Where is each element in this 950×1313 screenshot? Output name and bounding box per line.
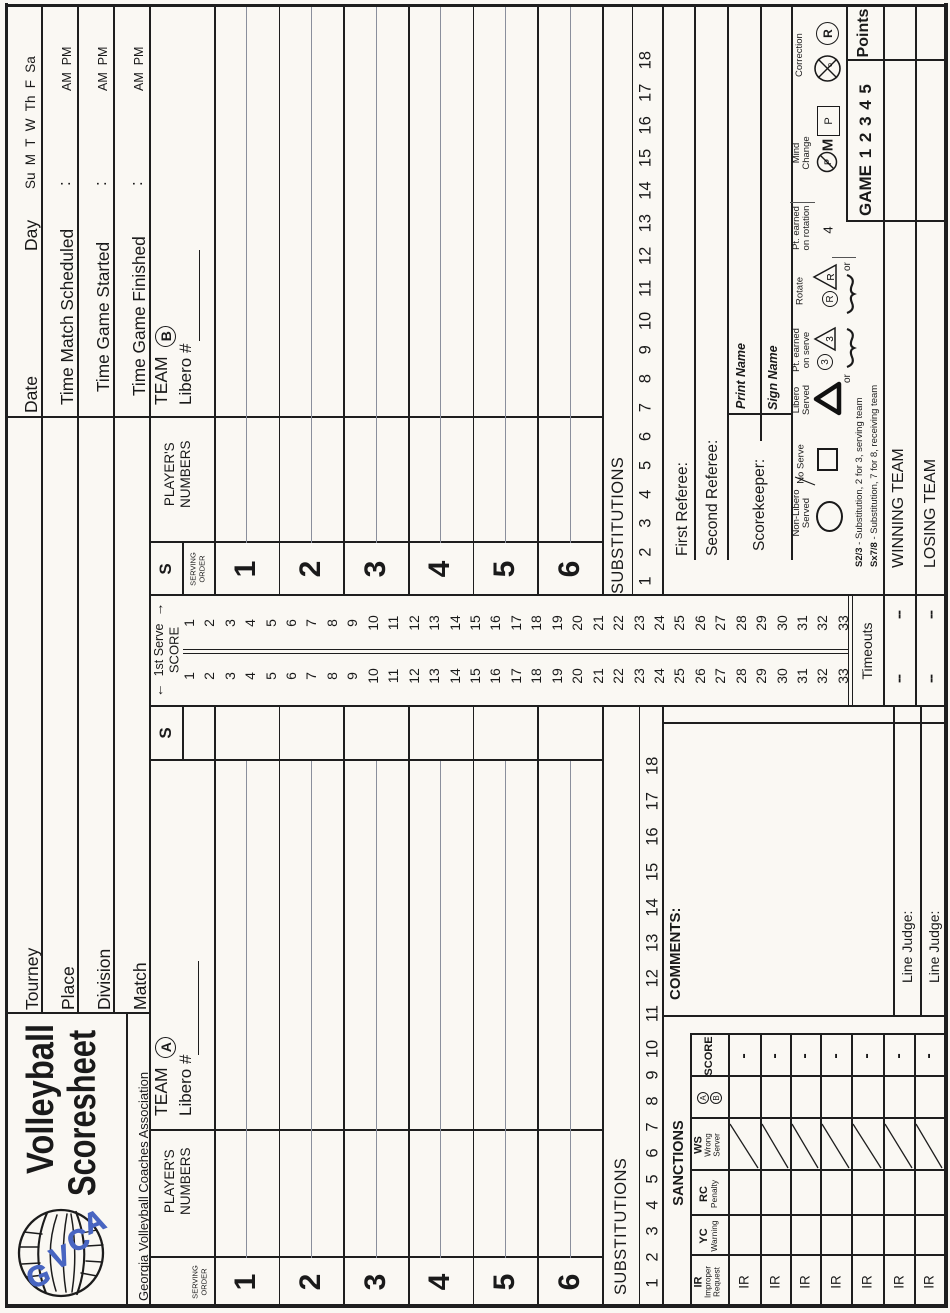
svg-text:R: R [826, 273, 837, 280]
svg-text:3: 3 [825, 336, 836, 342]
svg-text:o: o [827, 63, 834, 67]
svg-text:G: G [22, 1258, 55, 1296]
svg-text:P: P [823, 159, 833, 165]
